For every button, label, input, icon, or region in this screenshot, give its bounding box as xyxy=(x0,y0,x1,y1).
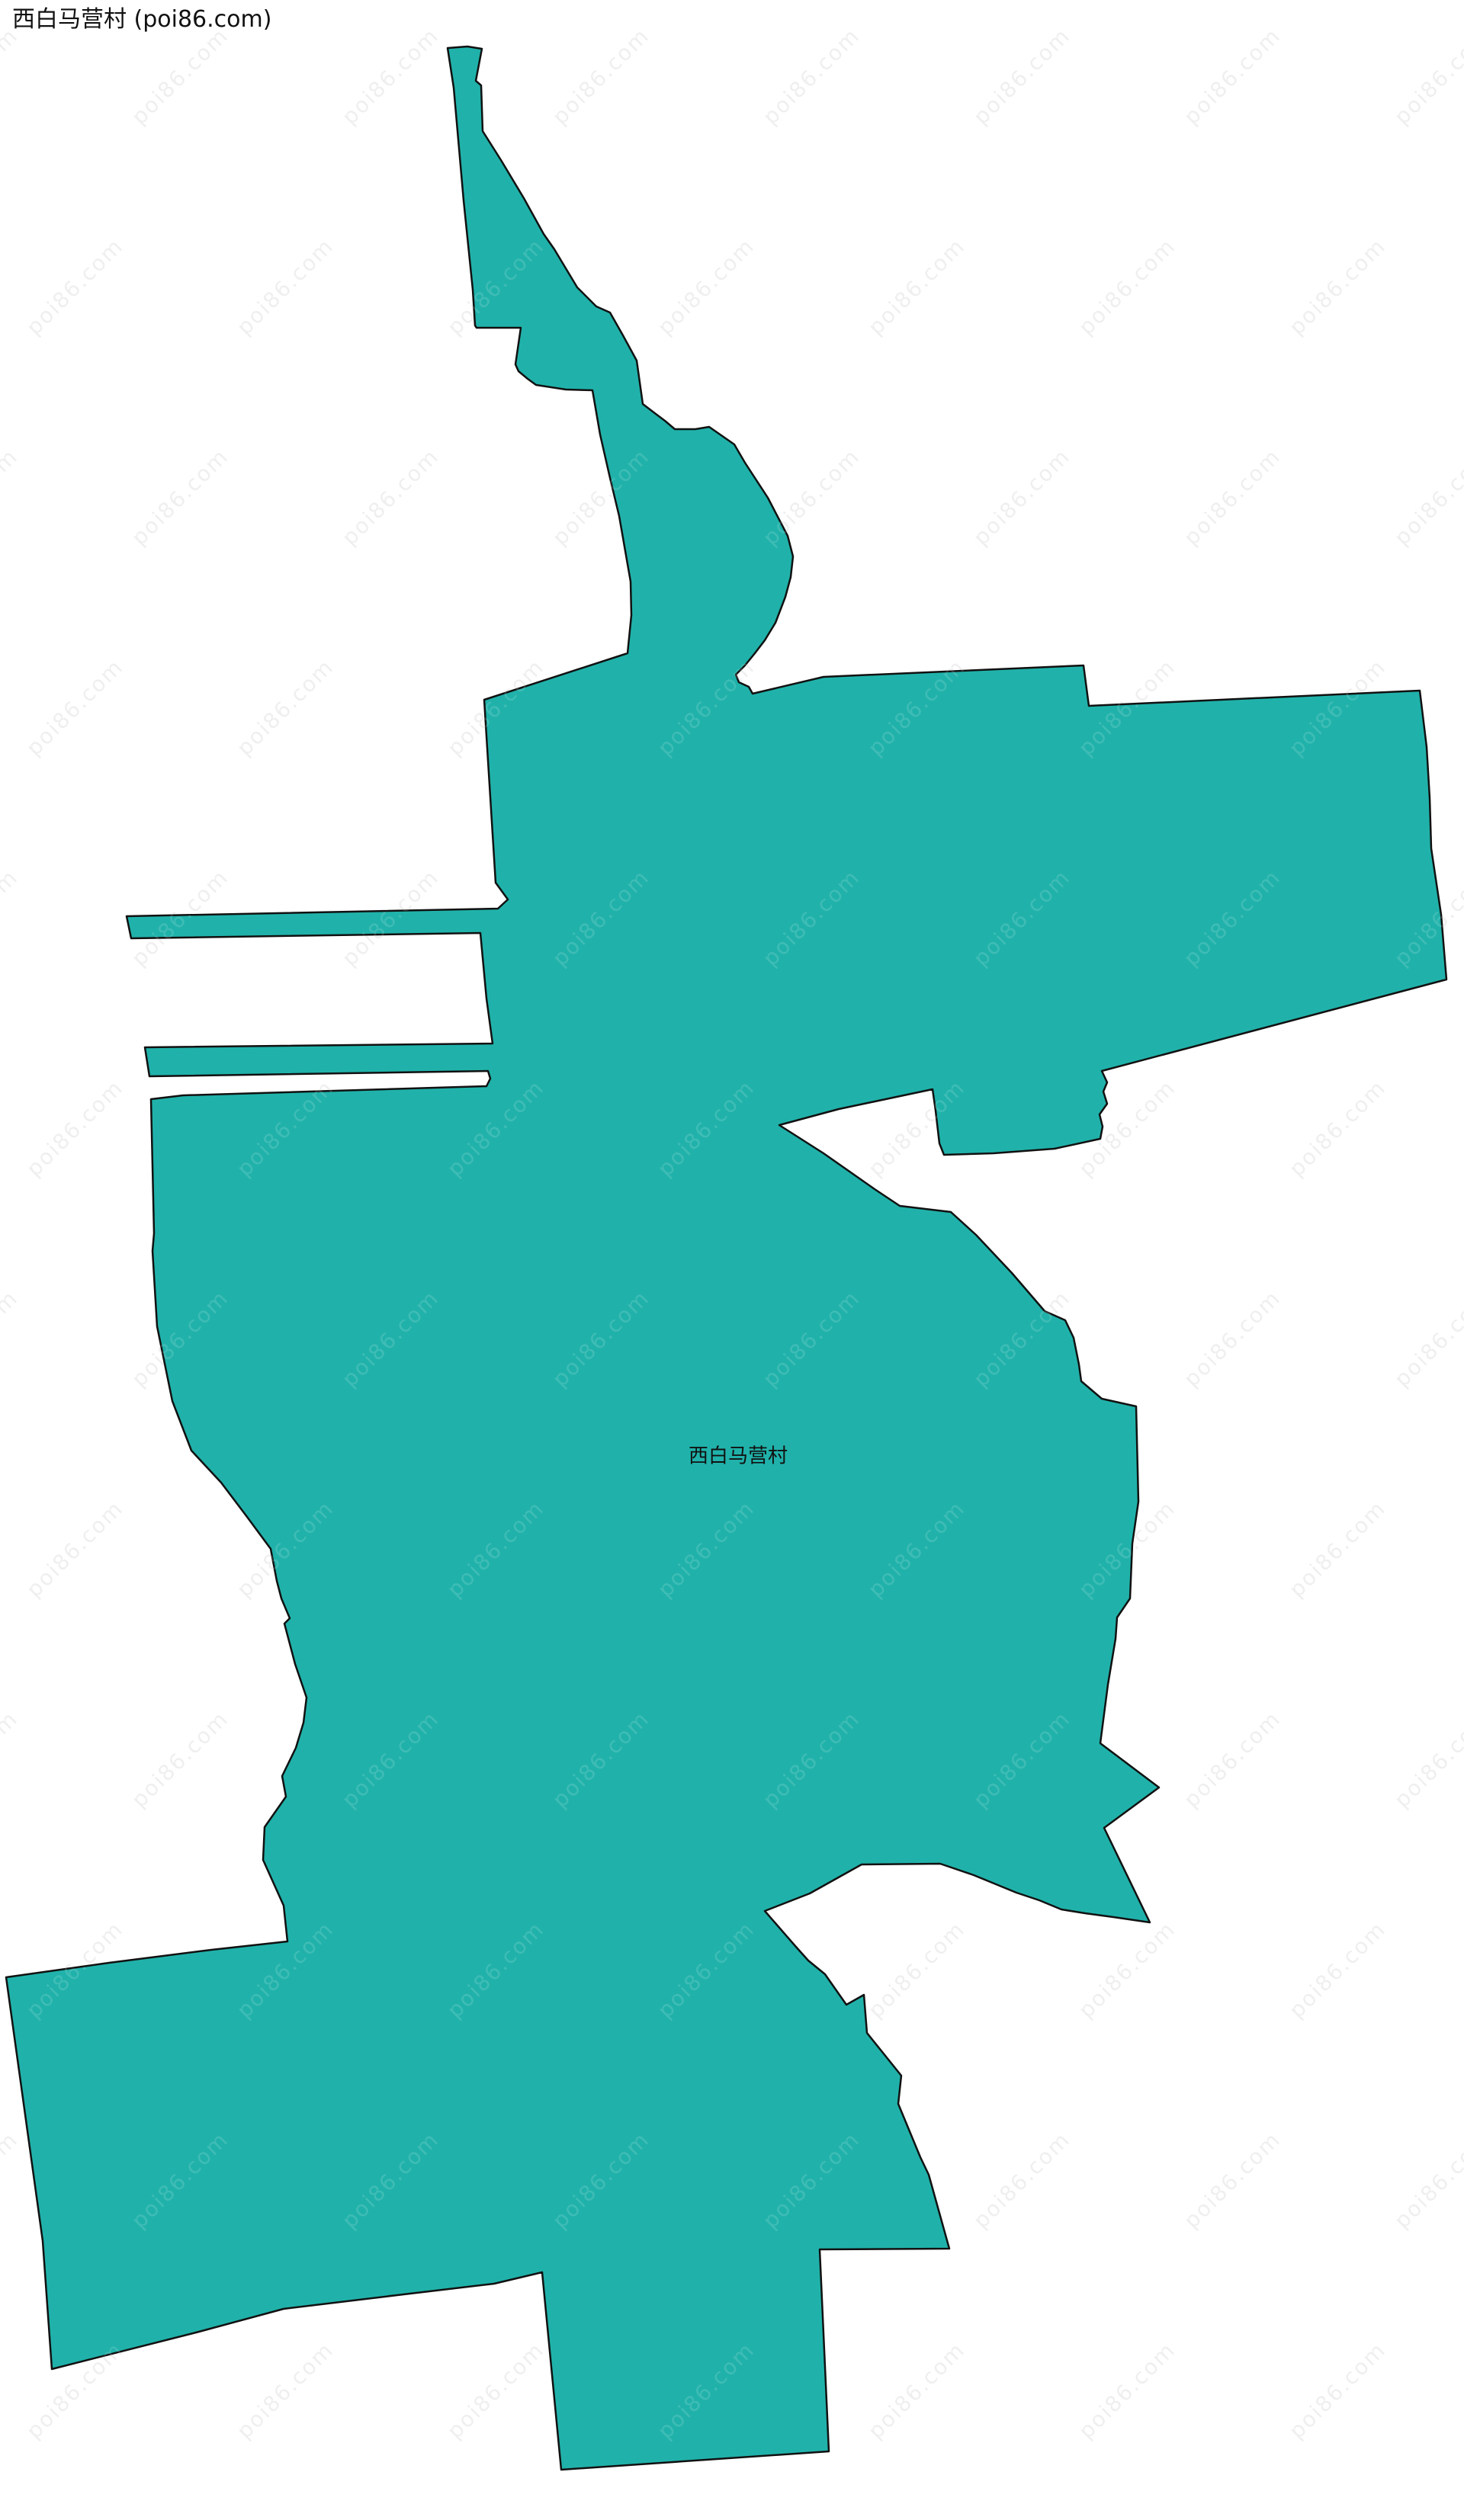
village-boundary-polygon xyxy=(6,46,1446,2470)
page-title: 西白马营村 (poi86.com) xyxy=(12,6,271,34)
boundary-map xyxy=(0,0,1464,2520)
map-canvas: poi86.compoi86.compoi86.compoi86.compoi8… xyxy=(0,0,1464,2520)
region-label: 西白马营村 xyxy=(689,1441,788,1469)
